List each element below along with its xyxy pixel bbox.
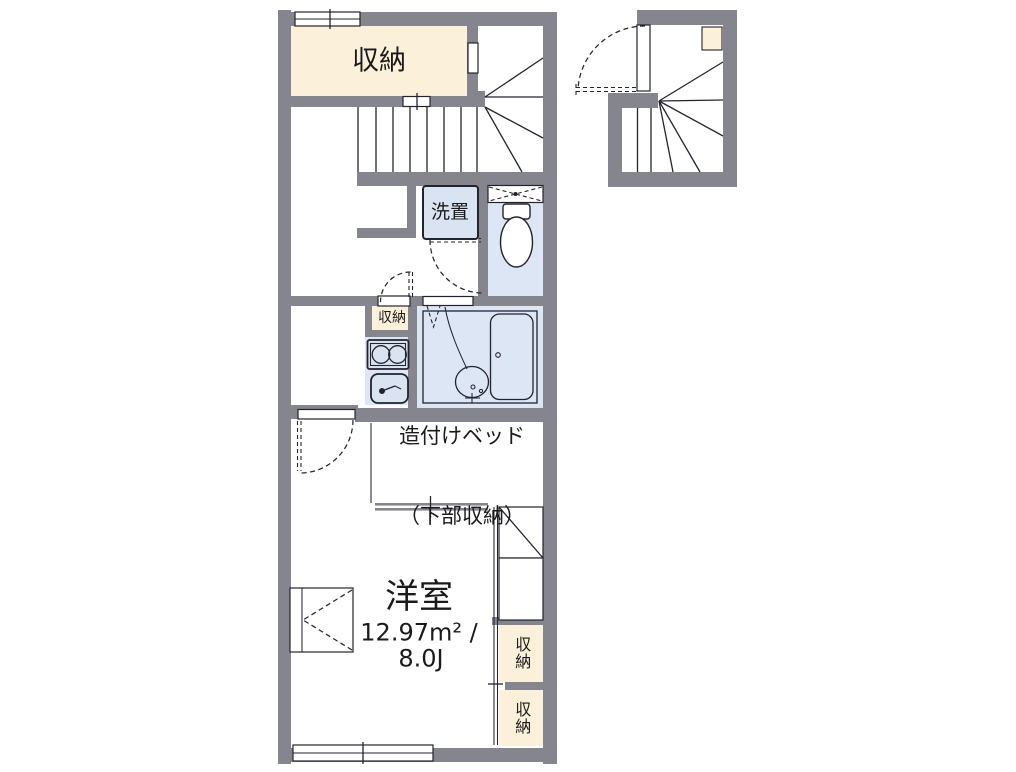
room-name-label: 洋室 bbox=[385, 576, 453, 620]
storage-door-opening bbox=[468, 43, 478, 73]
entry-door-swing-icon bbox=[576, 25, 650, 95]
storage-room-label: 収納 bbox=[352, 45, 406, 80]
upper-plan-closet bbox=[702, 27, 722, 50]
window-icon-bottom bbox=[293, 742, 433, 764]
floor-plan-canvas: 収納 洗置 収納 造付けベッド （下部収納） 洋室 12.97m² / 8.0J… bbox=[0, 0, 1016, 772]
room-area-jo-label: 8.0J bbox=[398, 644, 443, 675]
hall-storage-label: 収納 bbox=[378, 310, 406, 328]
bed-label: 造付けベッド （下部収納） bbox=[399, 369, 525, 557]
toilet-icon bbox=[501, 204, 533, 267]
bedroom-door-swing-icon bbox=[298, 410, 356, 474]
washer-label: 洗置 bbox=[431, 200, 469, 224]
window-icon-top bbox=[295, 9, 360, 29]
open-shelf-box bbox=[499, 558, 543, 620]
bed-label-line1: 造付けベッド bbox=[399, 423, 525, 450]
upper-stair-plan bbox=[576, 10, 737, 187]
hall-door-swing-icon bbox=[378, 272, 413, 306]
right-storage-upper-label: 収納 bbox=[511, 636, 531, 670]
right-storage-lower-label: 収納 bbox=[511, 701, 531, 735]
toilet-door-swing-icon bbox=[430, 239, 483, 294]
vent-window-icon bbox=[488, 186, 543, 203]
stove-icon bbox=[368, 340, 409, 369]
casement-window-icon bbox=[290, 588, 353, 652]
bed-label-line2: （下部収納） bbox=[399, 503, 525, 530]
